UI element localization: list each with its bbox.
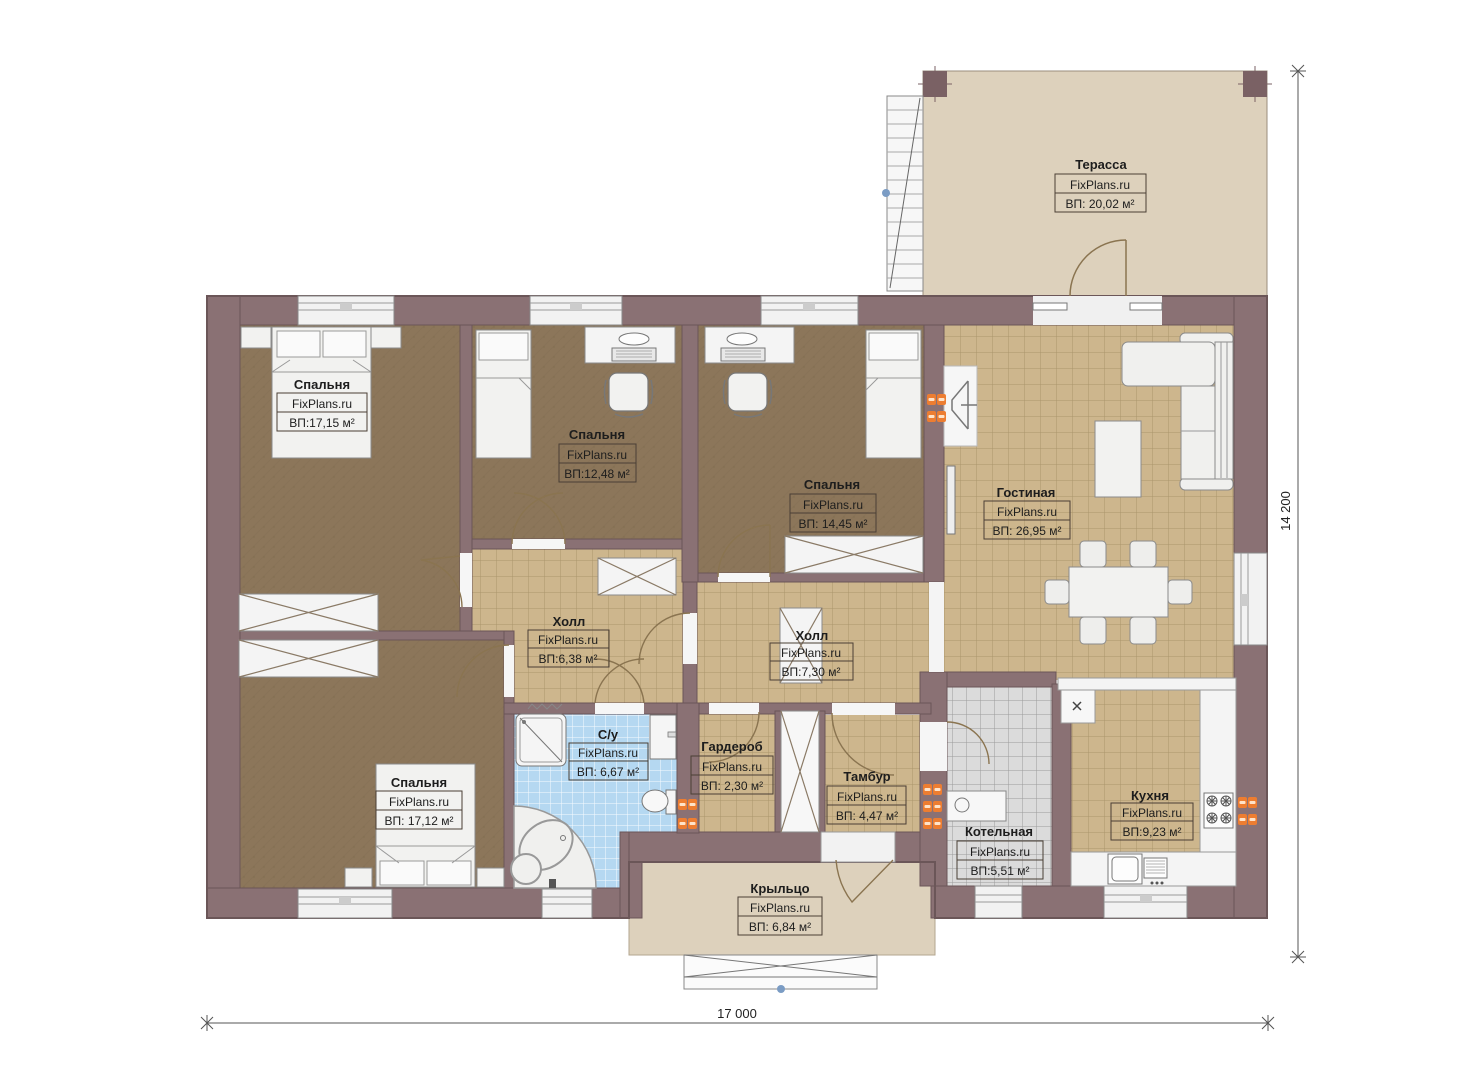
svg-text:FixPlans.ru: FixPlans.ru bbox=[997, 505, 1057, 519]
svg-text:FixPlans.ru: FixPlans.ru bbox=[750, 901, 810, 915]
svg-text:17 000: 17 000 bbox=[717, 1006, 757, 1021]
svg-text:ВП:9,23 м²: ВП:9,23 м² bbox=[1123, 825, 1182, 839]
svg-text:Холл: Холл bbox=[553, 614, 586, 629]
svg-text:ВП: 26,95 м²: ВП: 26,95 м² bbox=[993, 524, 1062, 538]
svg-text:FixPlans.ru: FixPlans.ru bbox=[803, 498, 863, 512]
svg-text:FixPlans.ru: FixPlans.ru bbox=[837, 790, 897, 804]
svg-text:FixPlans.ru: FixPlans.ru bbox=[292, 397, 352, 411]
svg-text:FixPlans.ru: FixPlans.ru bbox=[781, 646, 841, 660]
svg-text:Кухня: Кухня bbox=[1131, 788, 1169, 803]
svg-text:С/у: С/у bbox=[598, 727, 619, 742]
svg-text:ВП: 6,84 м²: ВП: 6,84 м² bbox=[749, 920, 811, 934]
svg-text:FixPlans.ru: FixPlans.ru bbox=[578, 746, 638, 760]
svg-text:FixPlans.ru: FixPlans.ru bbox=[702, 760, 762, 774]
svg-text:Спальня: Спальня bbox=[294, 377, 350, 392]
svg-text:Терасса: Терасса bbox=[1075, 157, 1127, 172]
svg-text:FixPlans.ru: FixPlans.ru bbox=[1122, 806, 1182, 820]
svg-text:ВП:6,38 м²: ВП:6,38 м² bbox=[539, 652, 598, 666]
svg-text:ВП: 6,67 м²: ВП: 6,67 м² bbox=[577, 765, 639, 779]
svg-text:ВП:12,48 м²: ВП:12,48 м² bbox=[564, 467, 630, 481]
svg-text:ВП: 17,12 м²: ВП: 17,12 м² bbox=[385, 814, 454, 828]
svg-text:ВП:17,15 м²: ВП:17,15 м² bbox=[289, 416, 355, 430]
svg-text:ВП: 20,02 м²: ВП: 20,02 м² bbox=[1066, 197, 1135, 211]
svg-text:Крыльцо: Крыльцо bbox=[750, 881, 809, 896]
svg-text:FixPlans.ru: FixPlans.ru bbox=[1070, 178, 1130, 192]
svg-text:FixPlans.ru: FixPlans.ru bbox=[389, 795, 449, 809]
svg-text:Спальня: Спальня bbox=[804, 477, 860, 492]
svg-text:ВП:7,30 м²: ВП:7,30 м² bbox=[782, 665, 841, 679]
svg-text:FixPlans.ru: FixPlans.ru bbox=[970, 845, 1030, 859]
svg-text:FixPlans.ru: FixPlans.ru bbox=[538, 633, 598, 647]
svg-text:FixPlans.ru: FixPlans.ru bbox=[567, 448, 627, 462]
svg-text:Гардероб: Гардероб bbox=[701, 739, 762, 754]
svg-text:Спальня: Спальня bbox=[391, 775, 447, 790]
svg-text:Котельная: Котельная bbox=[965, 824, 1033, 839]
svg-text:14 200: 14 200 bbox=[1278, 491, 1293, 531]
svg-text:Спальня: Спальня bbox=[569, 427, 625, 442]
svg-text:ВП: 14,45 м²: ВП: 14,45 м² bbox=[799, 517, 868, 531]
svg-text:ВП:5,51 м²: ВП:5,51 м² bbox=[971, 864, 1030, 878]
svg-text:ВП: 4,47 м²: ВП: 4,47 м² bbox=[836, 809, 898, 823]
svg-text:Гостиная: Гостиная bbox=[997, 485, 1056, 500]
svg-text:Холл: Холл bbox=[796, 628, 829, 643]
svg-text:Тамбур: Тамбур bbox=[843, 769, 890, 784]
svg-text:ВП: 2,30 м²: ВП: 2,30 м² bbox=[701, 779, 763, 793]
